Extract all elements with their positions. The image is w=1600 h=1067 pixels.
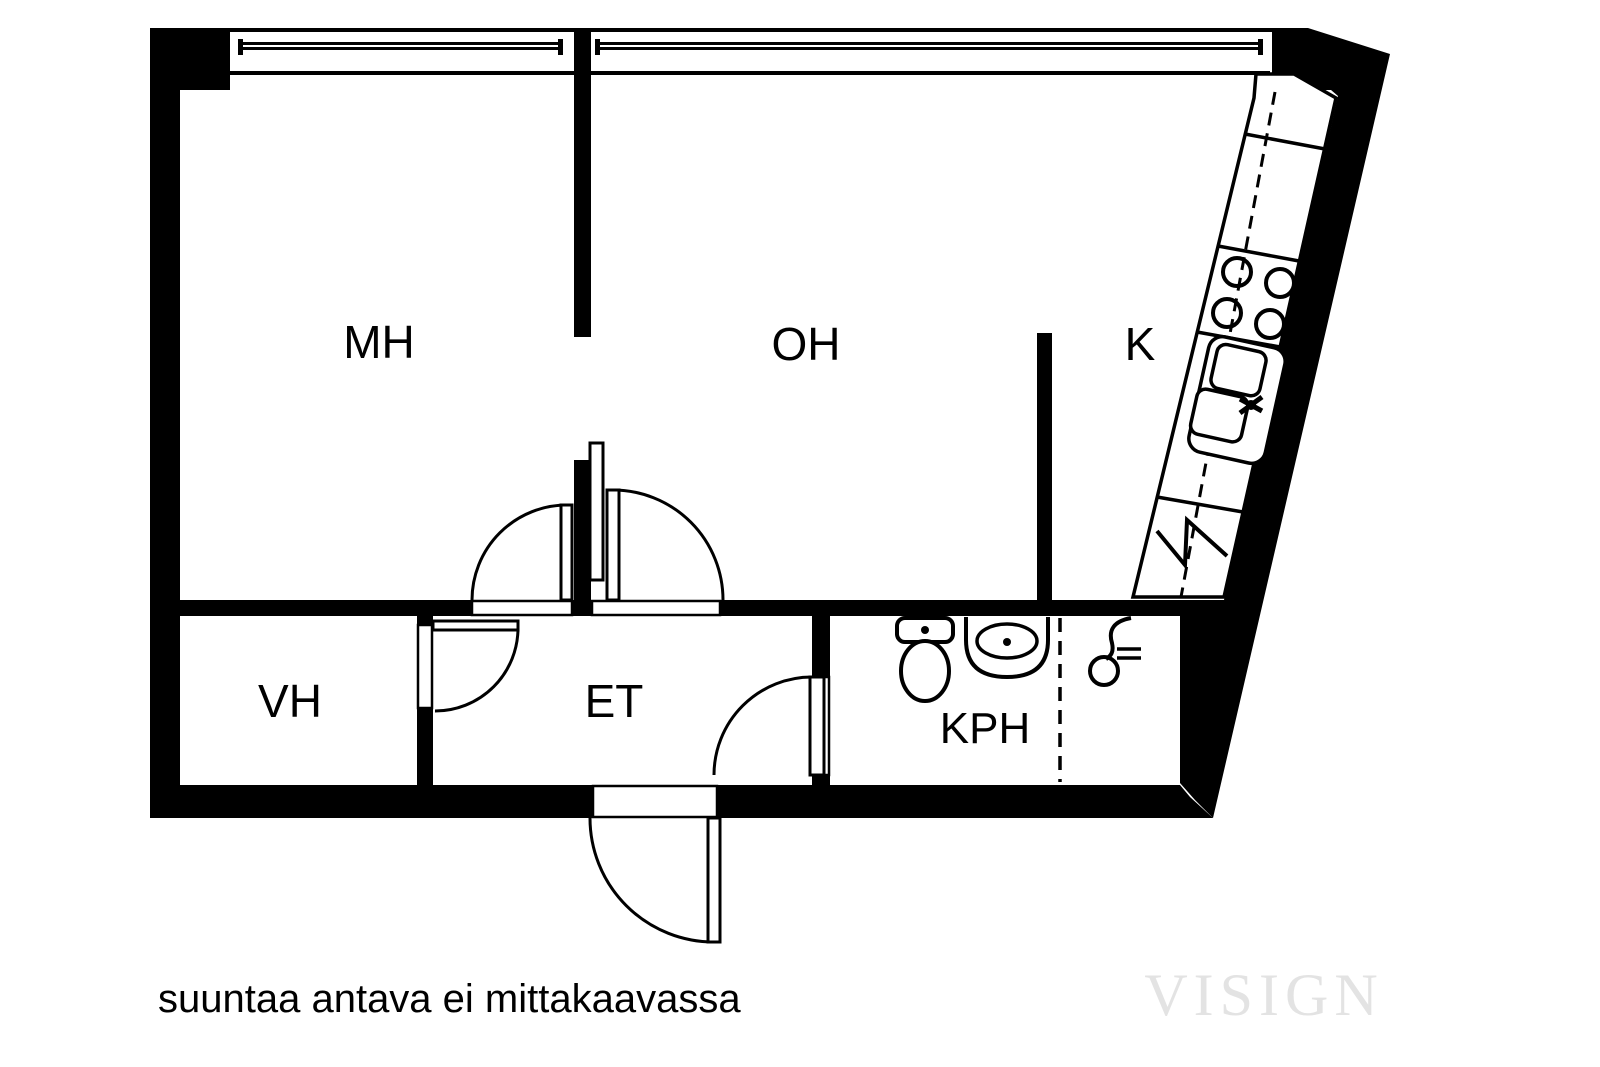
window-outer-edge [230,28,1272,32]
kitchen-sink-basin-1 [1209,343,1268,398]
opening-oh [592,601,720,615]
wall-interior-band-east [720,600,1224,616]
door-oh-swing-arc [613,490,723,600]
window-inner-edge-left [230,71,575,75]
shower-bars [1117,649,1141,658]
toilet-icon [897,618,953,701]
floor-plan: MH OH K VH ET KPH suuntaa antava ei mitt… [0,0,1600,1067]
wall-divider-mh-oh [574,28,591,337]
window-frame-tick-2 [558,39,563,55]
window-frame-tick-4 [1258,39,1263,55]
door-kph-leaf [810,677,824,775]
window-glazing-left-1 [243,42,561,45]
window-frame-tick-1 [238,39,243,55]
washbasin-drain [1003,638,1011,646]
door-kph [714,677,824,775]
shower-icon [1090,618,1141,685]
door-entrance-leaf [708,818,720,942]
room-label-mh: MH [343,316,415,368]
room-label-vh: VH [258,675,322,727]
door-entrance [590,818,720,942]
shower-arm [1106,618,1131,659]
window-glazing-left-2 [243,47,561,50]
door-mh [472,505,572,600]
room-label-k: K [1125,318,1156,370]
door-vh [433,621,518,711]
opening-entrance [593,786,717,817]
opening-vh [418,625,432,708]
door-sliding-leaf [590,443,603,580]
wall-divider-oh-k [1037,333,1052,616]
window-glazing-right-1 [598,42,1262,45]
door-kph-swing-arc [714,677,812,775]
kitchen-sink-basin-2 [1189,387,1250,443]
door-mh-leaf [561,505,572,600]
door-sliding-mh [590,443,603,580]
washbasin-icon [966,617,1048,677]
window-band [230,28,1272,75]
wall-corner-top-left [150,28,230,90]
door-oh-leaf [607,490,619,600]
door-mh-swing-arc [472,505,567,600]
door-vh-swing-arc [435,628,518,711]
wall-left [150,28,180,818]
room-label-oh: OH [772,318,841,370]
window-inner-edge-right [591,71,1270,75]
wall-interior-band-mid [572,600,592,616]
toilet-bowl [901,641,949,701]
floor-plan-page: MH OH K VH ET KPH suuntaa antava ei mitt… [0,0,1600,1067]
room-label-kph: KPH [940,704,1030,753]
window-frame-tick-3 [595,39,600,55]
wall-interior-band-west [180,600,472,616]
shower-head [1090,657,1118,685]
disclaimer-note: suuntaa antava ei mittakaavassa [158,977,741,1021]
bathroom-fixtures [897,617,1141,782]
opening-mh [472,601,572,615]
door-entrance-swing-arc [590,818,714,942]
wall-stub-et [574,460,591,616]
window-glazing-right-2 [598,47,1262,50]
watermark-text: VISIGN [1144,962,1383,1028]
room-label-et: ET [585,675,644,727]
door-oh [607,490,723,600]
door-vh-leaf [433,621,518,630]
toilet-tank-button [921,626,929,634]
